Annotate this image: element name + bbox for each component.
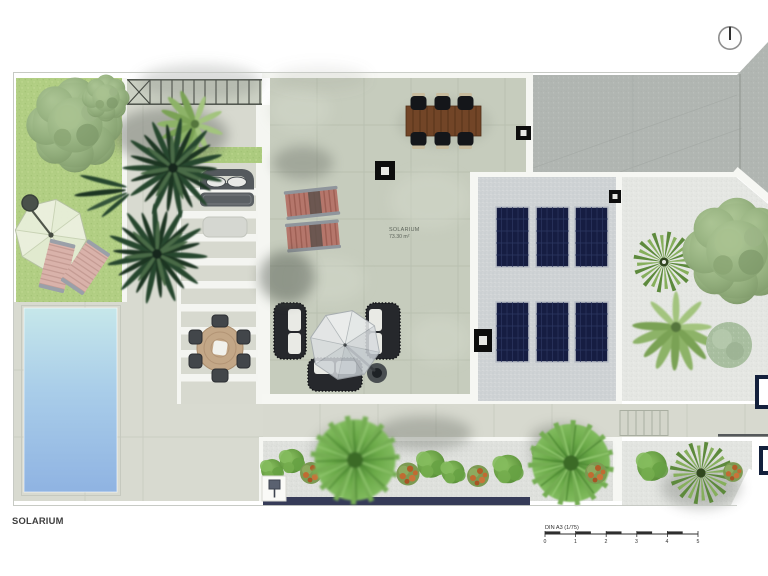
svg-text:3: 3 bbox=[635, 539, 638, 545]
svg-text:4: 4 bbox=[666, 539, 669, 545]
svg-text:SOLARIUM: SOLARIUM bbox=[12, 515, 64, 526]
svg-text:5: 5 bbox=[697, 539, 700, 545]
svg-text:0: 0 bbox=[544, 539, 547, 545]
svg-text:2: 2 bbox=[605, 539, 608, 545]
svg-text:SOLARIUM: SOLARIUM bbox=[389, 227, 420, 233]
svg-text:DIN A3 (1/75): DIN A3 (1/75) bbox=[545, 525, 579, 531]
svg-text:73.30 m²: 73.30 m² bbox=[389, 234, 410, 240]
svg-text:1: 1 bbox=[574, 539, 577, 545]
